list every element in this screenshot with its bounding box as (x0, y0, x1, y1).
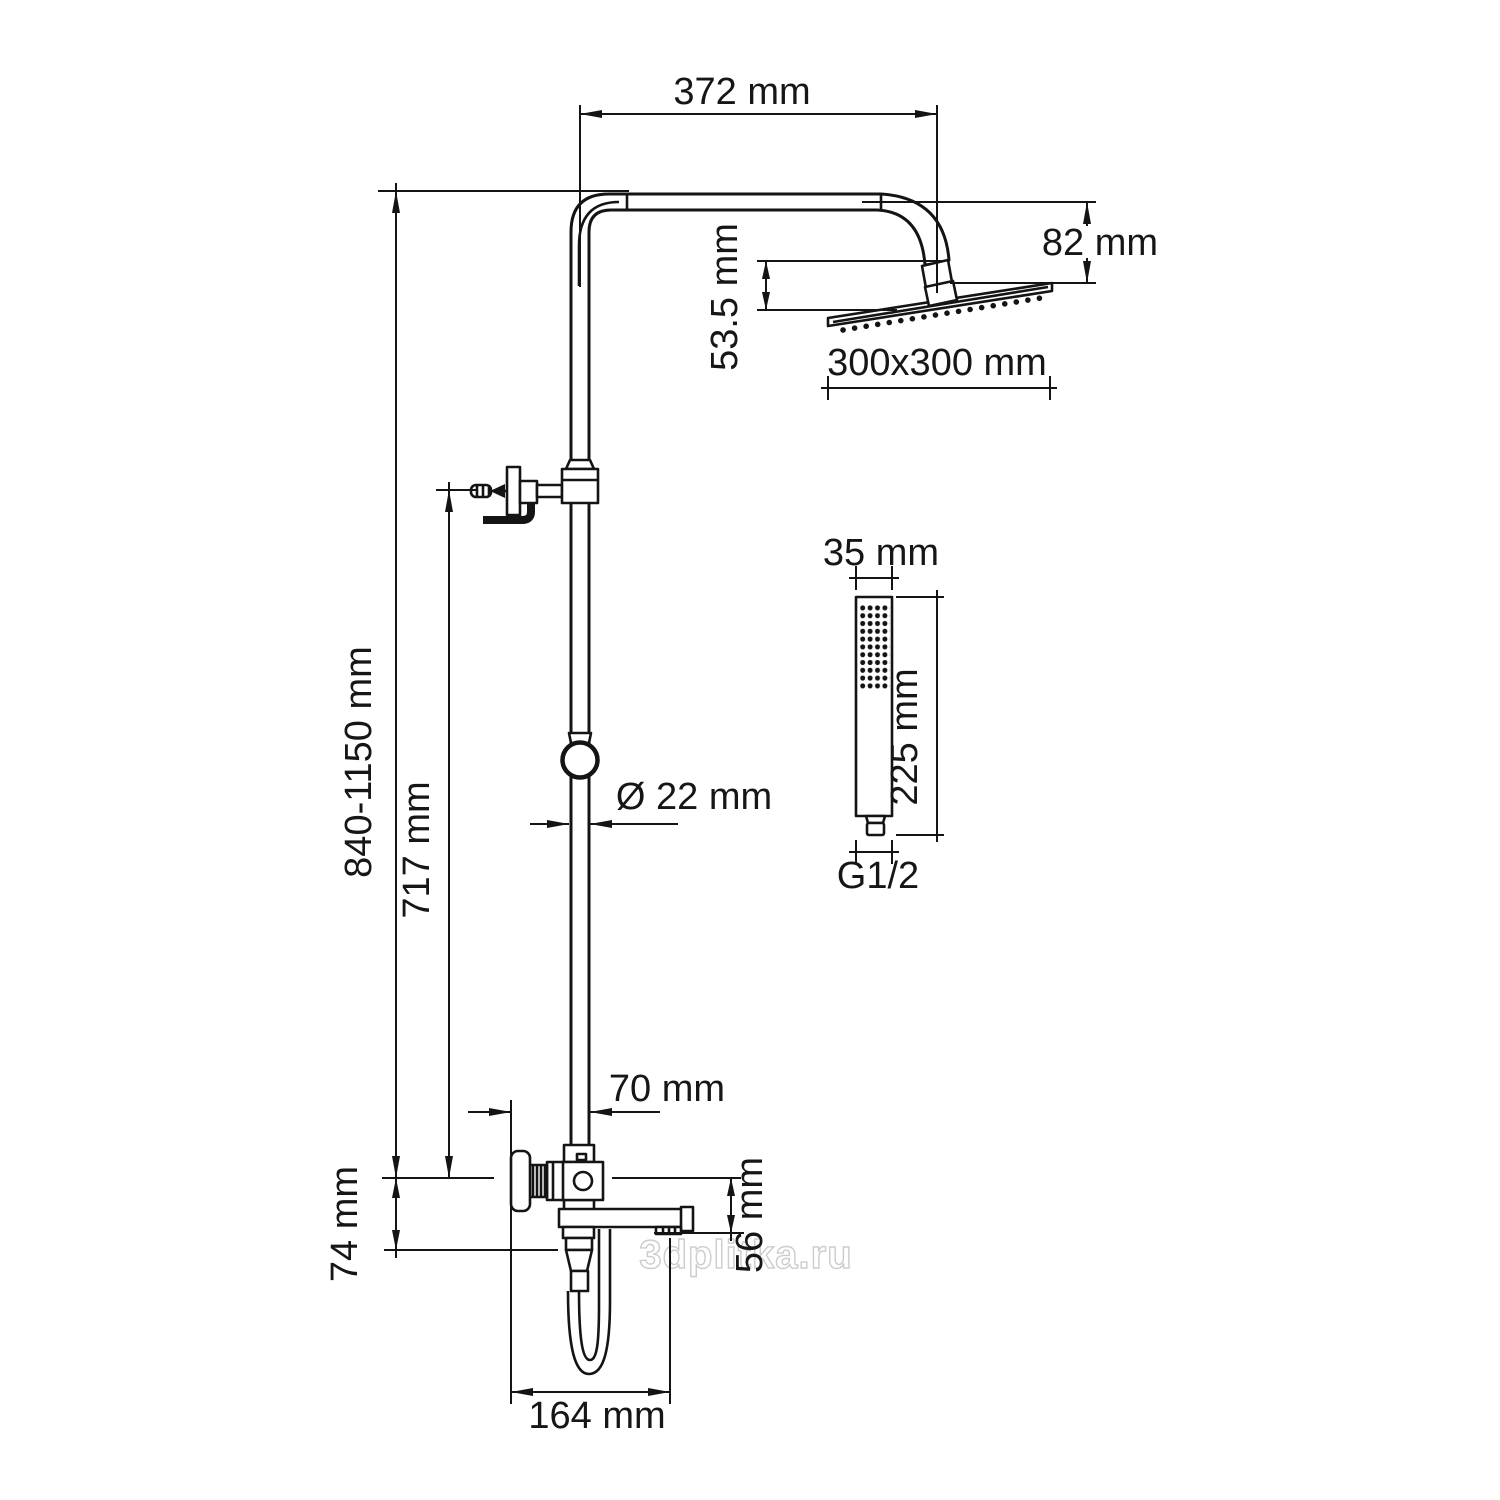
diverter-knob (563, 733, 598, 778)
handle-collar (547, 1162, 563, 1200)
shower-diagram: 3dplitka.ru 372 mm 82 mm 53.5 mm 300x300… (0, 0, 1500, 1500)
dim-label-56: 56 mm (729, 1157, 771, 1273)
bracket-flange (507, 467, 520, 515)
arrowhead (547, 820, 569, 828)
arrowhead (392, 1156, 400, 1178)
dimension-pipe-diameter: Ø 22 mm (530, 776, 772, 828)
arrowhead (445, 490, 453, 512)
hose-tail (571, 1271, 588, 1291)
head-ball-joint-lower (925, 281, 957, 306)
dim-label-70: 70 mm (609, 1068, 725, 1110)
arrowhead (392, 191, 400, 213)
dim-label-300x300: 300x300 mm (827, 342, 1047, 384)
pipe-collar-top (566, 460, 594, 469)
bracket-block (520, 481, 537, 503)
arrowhead (915, 110, 937, 118)
arrowhead (489, 1108, 511, 1116)
spout-end-cap (681, 1207, 693, 1231)
screw-tip-arrow (490, 484, 505, 498)
dim-label-35: 35 mm (823, 532, 939, 574)
hose-union-lower (566, 1238, 592, 1250)
arrowhead (762, 292, 770, 310)
dimension-300x300: 300x300 mm (821, 342, 1057, 400)
drawing-canvas: 3dplitka.ru 372 mm 82 mm 53.5 mm 300x300… (0, 0, 1500, 1500)
arrowhead (1083, 261, 1091, 283)
overhead-shower-head (828, 260, 1052, 330)
arrowhead (590, 820, 612, 828)
mixer-body-port (574, 1172, 592, 1190)
arrowhead (1083, 202, 1091, 224)
hose-cone (566, 1250, 592, 1271)
dimension-g12: G1/2 (837, 840, 919, 897)
dim-label-225: 225 mm (884, 668, 926, 805)
arrowhead (392, 1178, 400, 1198)
dim-label-840-1150: 840-1150 mm (338, 646, 380, 878)
spout (559, 1209, 691, 1227)
dimension-35: 35 mm (823, 532, 939, 590)
dimension-70: 70 mm (468, 1068, 725, 1116)
hose-union-upper (563, 1227, 594, 1238)
dim-label-372: 372 mm (673, 71, 810, 113)
hand-shower-nozzle (867, 823, 884, 835)
arrowhead (392, 1230, 400, 1250)
dim-label-22: Ø 22 mm (616, 776, 772, 818)
dim-label-53-5: 53.5 mm (704, 223, 746, 371)
dim-label-82: 82 mm (1042, 222, 1158, 264)
arrowhead (445, 1156, 453, 1178)
arrowhead (580, 110, 602, 118)
dim-label-717: 717 mm (396, 781, 438, 918)
dim-label-164: 164 mm (528, 1395, 665, 1437)
connector-notch (577, 1154, 586, 1160)
arrowhead (762, 261, 770, 279)
dim-label-74: 74 mm (324, 1166, 366, 1282)
bracket-rod (537, 485, 562, 497)
mixer-handle (511, 1151, 530, 1211)
dimension-717: 717 mm (396, 482, 476, 1178)
dimension-372: 372 mm (580, 71, 937, 293)
thread-label-g12: G1/2 (837, 855, 919, 897)
pipe-collar (562, 469, 598, 503)
knob-circle (563, 743, 598, 778)
